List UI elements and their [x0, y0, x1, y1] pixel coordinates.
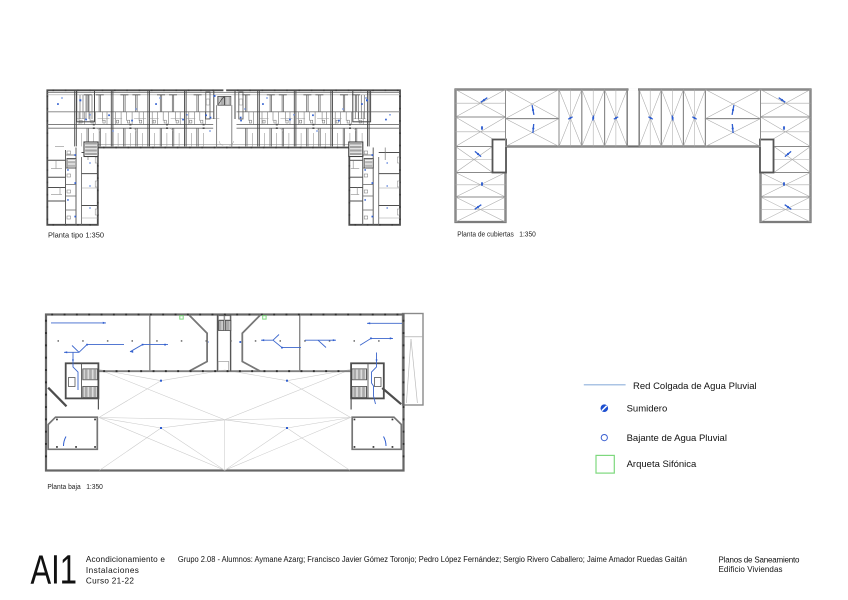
svg-text:Grupo 2.08 - Alumnos: Aymane A: Grupo 2.08 - Alumnos: Aymane Azarg; Fran…: [178, 555, 687, 564]
svg-text:Acondicionamiento e: Acondicionamiento e: [86, 555, 165, 564]
svg-text:Bajante de Agua Pluvial: Bajante de Agua Pluvial: [627, 433, 727, 444]
svg-text:Planta tipo 1:350: Planta tipo 1:350: [48, 233, 104, 240]
svg-text:Edificio Viviendas: Edificio Viviendas: [719, 565, 783, 574]
svg-text:AI1: AI1: [31, 547, 78, 593]
svg-text:Arqueta Sifónica: Arqueta Sifónica: [627, 459, 697, 470]
svg-text:Red Colgada de Agua Pluvial: Red Colgada de Agua Pluvial: [633, 381, 757, 392]
svg-text:Curso 21-22: Curso 21-22: [86, 577, 134, 586]
svg-text:Planta de cubiertas 1:350: Planta de cubiertas 1:350: [457, 232, 536, 239]
svg-text:Planta baja 1:350: Planta baja 1:350: [47, 484, 103, 491]
svg-text:Planos de Saneamiento: Planos de Saneamiento: [719, 556, 801, 565]
svg-text:Sumidero: Sumidero: [627, 404, 668, 415]
svg-text:Instalaciones: Instalaciones: [86, 566, 139, 575]
